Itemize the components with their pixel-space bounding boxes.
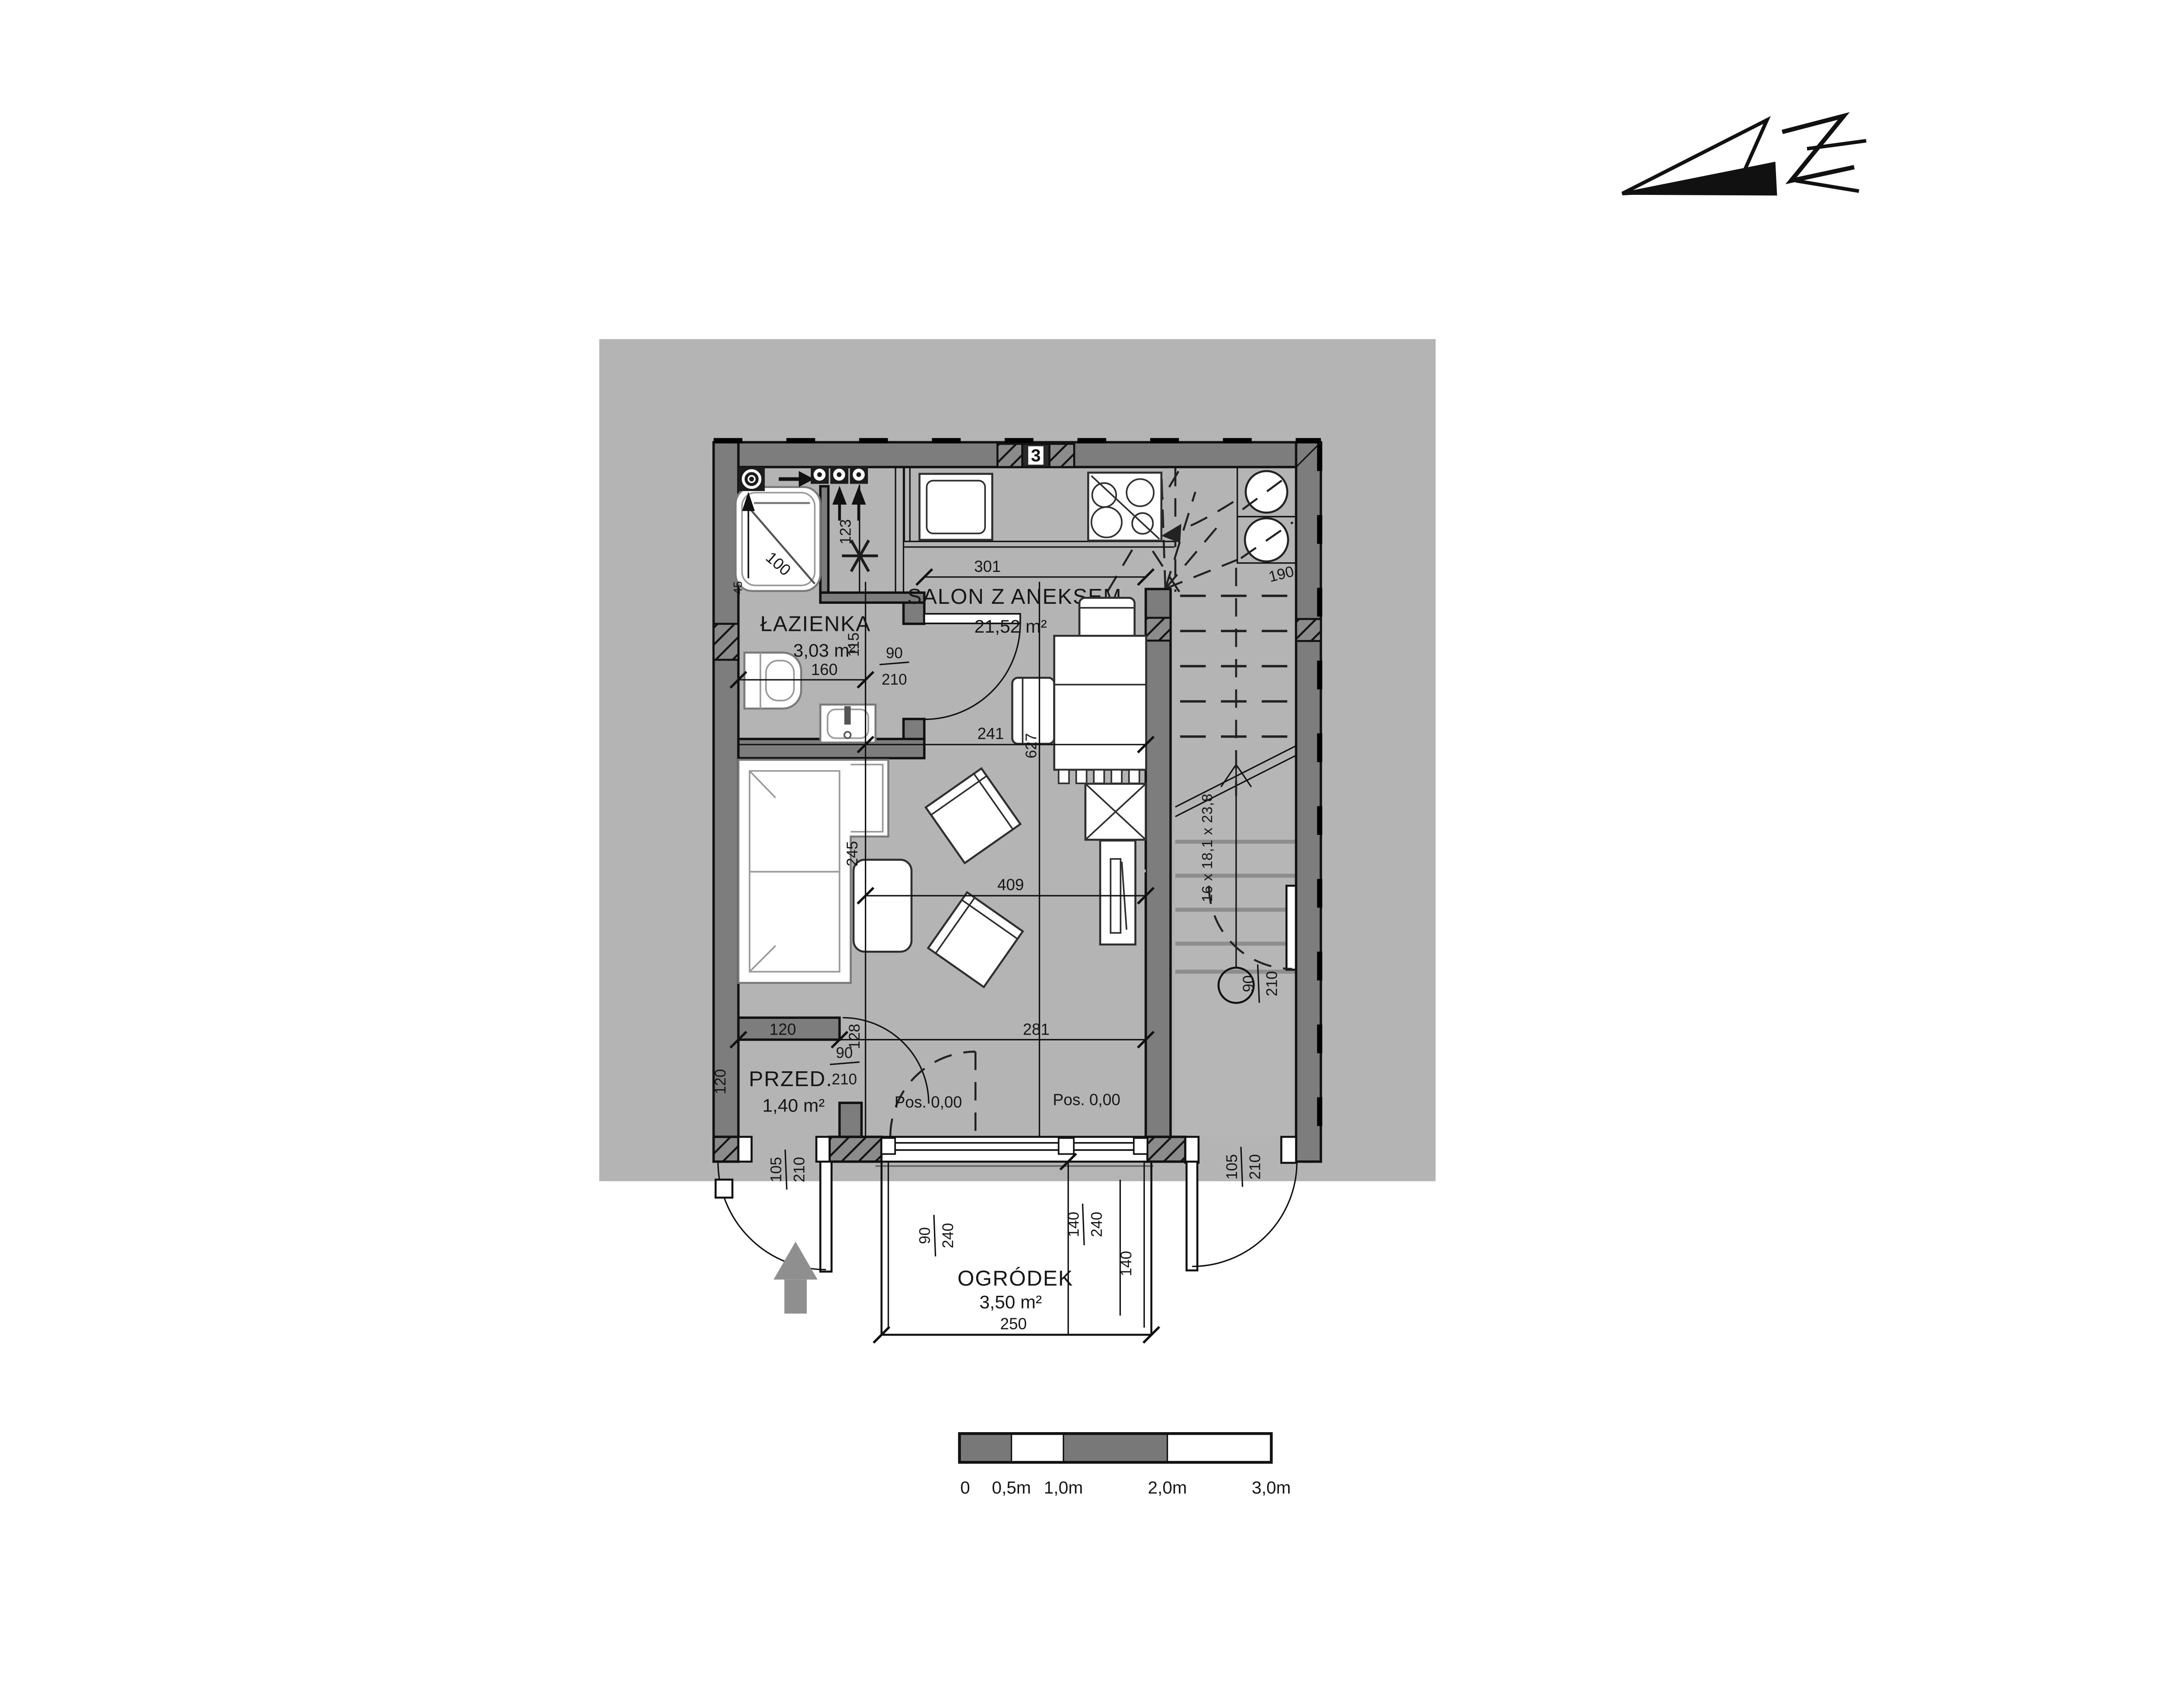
wall-jamb-hatched [1145,1137,1185,1162]
win-left-height: 240 [940,1223,957,1248]
north-letter-stroke3 [1796,181,1859,191]
appliance-dot-icon [856,472,861,477]
exit-door-leaf [1186,1162,1197,1271]
window-left-dim: 90 240 [917,1215,957,1257]
table-run-dim: 241 [977,724,1004,742]
scale-tick-2: 2,0m [1148,1478,1187,1497]
north-arrow-icon [1622,116,1866,194]
terrace: OGRÓDEK 3,50 m² 250 140 90 240 140 240 [881,1162,1151,1335]
scale-tick-0: 0 [960,1478,970,1497]
win-right-width: 140 [1065,1212,1082,1237]
entry-door-leaf [820,1162,832,1272]
hall-door-width: 90 [836,1045,853,1062]
exit-door-width: 105 [1224,1154,1241,1180]
window-frame-block [1134,1138,1147,1154]
hall-door-height: 210 [832,1071,857,1088]
window-frame-block [881,1138,895,1154]
bathroom-label: ŁAZIENKA [760,612,871,636]
bath-width-dim: 160 [811,661,838,679]
scale-seg-dark [960,1433,1012,1462]
dim-fraction-bar [1082,1204,1084,1245]
hall-left-dim: 120 [712,1069,729,1094]
window-mullion-block [1059,1138,1074,1154]
scale-seg-light [1168,1433,1272,1462]
kitchen-run-dim: 301 [974,557,1001,575]
shaft-badge-label: 3 [1031,446,1040,465]
appliance-dot-icon [817,472,822,477]
shaft-hatch-right [1050,444,1075,467]
appliance-dot-icon [837,472,842,477]
scale-tick-3: 3,0m [1252,1478,1291,1497]
bath-door-height: 210 [881,672,907,688]
downpipe-symbol [715,1180,732,1198]
window-right-dim: 140 240 [1065,1204,1105,1245]
exit-jamb [1185,1137,1199,1163]
entry-door-width: 105 [768,1157,784,1182]
living-level-label: Pos. 0,00 [1053,1091,1120,1109]
scale-tick-05: 0,5m [992,1478,1031,1497]
win-right-height: 240 [1089,1212,1105,1237]
sofa-depth-dim: 245 [844,841,861,866]
stair-door-height: 210 [1264,971,1280,996]
entry-level-label: Pos. 0,00 [895,1093,962,1111]
entry-jamb [816,1137,829,1162]
salon-run-dim: 409 [997,876,1024,893]
salon-bottom-dim: 281 [1023,1021,1050,1039]
entry-jamb [738,1137,751,1162]
shaft-hatch-left [998,444,1023,467]
washbasin-tap-icon [844,706,851,724]
scale-tick-1: 1,0m [1044,1478,1083,1497]
terrace-depth-dim: 140 [1118,1251,1135,1276]
wall-right-pier-hatch [1296,619,1321,641]
salon-depth-dim: 627 [1023,733,1040,758]
floor-plan-drawing: 16 x 18,1 x 23,8 190 90 210 [0,0,2184,1550]
garden-area: 3,50 m² [979,1292,1042,1312]
hall-label: PRZED. [749,1067,833,1091]
scale-bar: 0 0,5m 1,0m 2,0m 3,0m [960,1433,1291,1497]
shower-side-dim: 45 [731,581,745,595]
entry-door-height: 210 [791,1157,808,1182]
coffee-table [854,860,912,952]
living-room-area: 21,52 m² [975,616,1047,637]
wall-middle-hatch [1146,618,1171,641]
bath-jamb-dim: 115 [846,633,862,657]
meter-symbol-icon [1246,471,1287,512]
dim-fraction-bar [934,1215,936,1257]
wall-shower-partition [820,486,828,592]
wall-right [1296,442,1321,1162]
scale-seg-dark [1064,1433,1168,1462]
stair-door-width: 90 [1241,975,1257,992]
wall-middle [1146,589,1171,1137]
hall-top-dim: 120 [770,1021,796,1039]
north-letter-stroke2 [1807,141,1866,149]
dining-table [1054,636,1147,770]
stair-run-label: 16 x 18,1 x 23,8 [1199,793,1215,902]
bath-door-width: 90 [886,645,903,661]
garden-label: OGRÓDEK [957,1267,1073,1291]
radiator-enclosure [1100,841,1136,945]
kitchen-sink [919,474,992,540]
floor-plan-page: 16 x 18,1 x 23,8 190 90 210 [0,0,2184,1550]
terrace-width-dim: 250 [1000,1315,1027,1333]
win-left-width: 90 [917,1227,933,1244]
exit-door-height: 210 [1247,1154,1264,1180]
scale-seg-light [1012,1433,1064,1462]
hall-area: 1,40 m² [762,1095,825,1115]
wall-corner-pier [714,1137,739,1162]
exit-jamb [1281,1137,1296,1163]
openings-bottom: 105 210 [875,1137,1297,1271]
wall-left-pier-hatch [714,624,739,660]
entrance-arrow-icon [774,1242,818,1314]
wall-hall-door-stub [840,1103,861,1137]
wall-bath-door-stub-bottom [903,719,924,740]
wall-jamb-hatched [829,1137,881,1162]
